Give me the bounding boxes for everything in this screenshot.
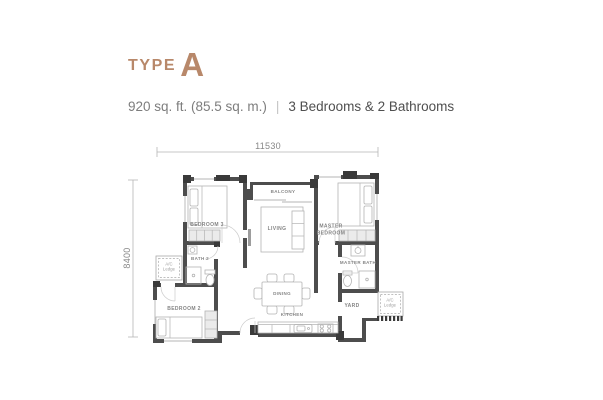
bedroom2-label: BEDROOM 2: [167, 306, 200, 313]
ac-ledge-left-line2: Ledge: [163, 267, 175, 272]
tv-console: [248, 229, 251, 246]
living-label: LIVING: [268, 226, 287, 233]
master-bedroom-label-line2: BEDROOM: [317, 230, 346, 237]
master-bedroom-label-line1: MASTER: [317, 224, 346, 231]
bedroom2-furniture: [156, 287, 217, 338]
bedroom3-label: BEDROOM 3: [190, 222, 223, 229]
dining-label: DINING: [273, 291, 291, 297]
ac-ledge-right-line2: Ledge: [384, 303, 396, 308]
floor-plan-drawing: [0, 0, 603, 400]
floor-plan-page: TYPE A 920 sq. ft. (85.5 sq. m.) | 3 Bed…: [0, 0, 603, 400]
bath2-label: BATH 2: [191, 256, 209, 262]
dimension-width-label: 11530: [255, 141, 281, 151]
yard-label: YARD: [344, 303, 359, 310]
master-bedroom-label: MASTER BEDROOM: [317, 224, 346, 237]
balcony-label: BALCONY: [271, 189, 296, 195]
master-bath-label: MASTER BATH: [340, 260, 376, 266]
ac-ledge-left-label: A/C Ledge: [163, 262, 175, 273]
ac-ledge-right-label: A/C Ledge: [384, 298, 396, 309]
bedroom3-furniture: [188, 186, 240, 243]
kitchen-label: KITCHEN: [281, 312, 303, 318]
master-bath-fixtures: [342, 245, 375, 288]
bath2-fixtures: [186, 246, 218, 286]
dimension-height-label: 8400: [122, 247, 132, 268]
kitchen-furniture: [240, 318, 338, 333]
